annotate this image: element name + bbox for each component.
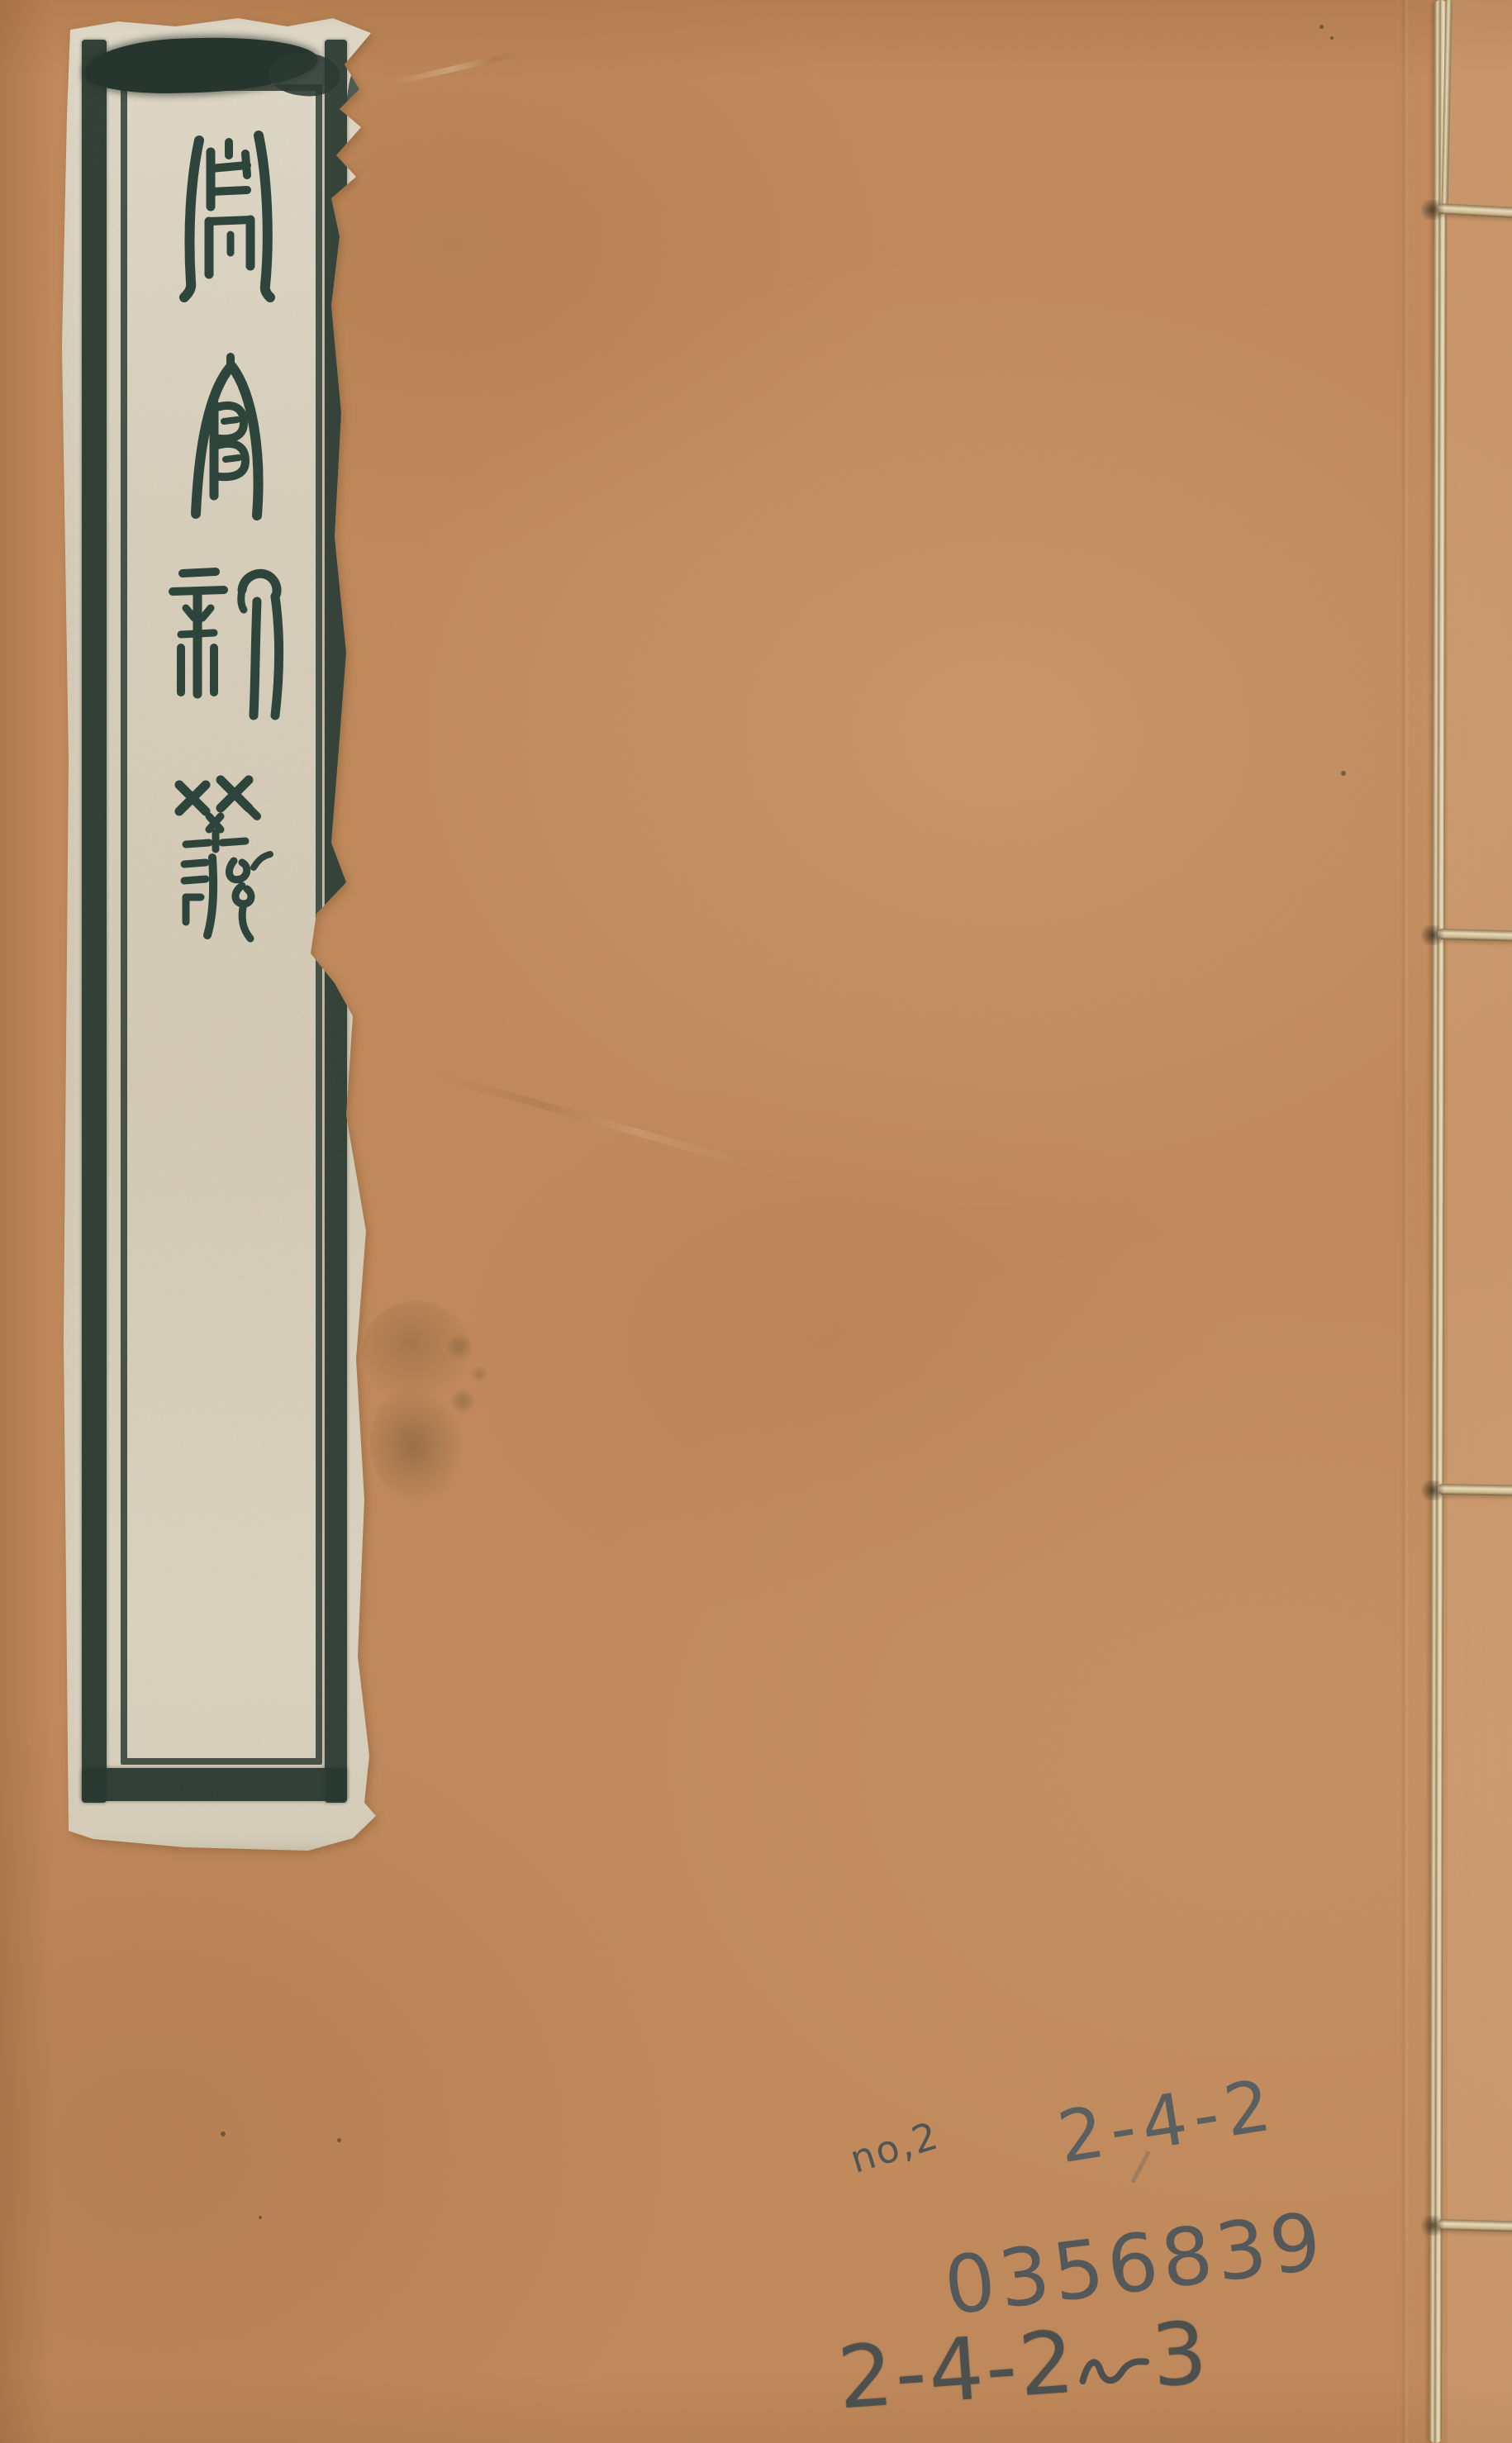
pencil-shelf-mark-top: 2-4-2 — [1053, 2064, 1283, 2179]
pencil-shelf-mark-bottom-prefix: 2-4-2 — [834, 2312, 1079, 2429]
pencil-shelf-mark-bottom: 2-4-2 3 — [834, 2302, 1212, 2428]
binding-knot-1 — [1421, 200, 1446, 220]
cover-wrinkle — [391, 49, 529, 86]
pencil-shelf-mark-bottom-suffix: 3 — [1148, 2302, 1213, 2407]
binding-crease — [1400, 0, 1410, 2443]
label-border-left — [82, 40, 107, 1803]
binding-knot-2 — [1421, 925, 1446, 945]
binding-knot-4 — [1421, 2216, 1446, 2236]
pencil-note: no,2 — [844, 2113, 944, 2182]
binding-stitch-4 — [1438, 2219, 1512, 2231]
label-border-torn-fragment — [344, 64, 373, 120]
speck — [221, 2132, 226, 2136]
speck — [1330, 36, 1334, 40]
title-char-zhou — [158, 117, 305, 311]
speck — [1319, 25, 1324, 29]
label-border-bottom — [82, 1768, 347, 1801]
speck — [259, 2216, 262, 2219]
title-char-yi — [158, 765, 305, 984]
binding-margin-highlight — [1448, 0, 1512, 2443]
book-cover: no,2 2-4-2 0356839 2-4-2 3 — [0, 0, 1512, 2443]
cover-crease — [435, 1071, 746, 1167]
label-border-right — [325, 40, 347, 1803]
speck — [337, 2138, 341, 2142]
speck — [1341, 771, 1346, 776]
title-label-paper — [60, 17, 387, 1856]
title-label — [60, 17, 387, 1856]
binding-stitch-2 — [1438, 929, 1512, 941]
binding-stitch-3 — [1438, 1484, 1512, 1496]
pencil-connector-glyph — [1074, 2331, 1154, 2396]
stain-speckles — [440, 1328, 506, 1419]
title-char-guan — [158, 349, 305, 539]
title-char-xin — [158, 555, 305, 741]
binding-knot-3 — [1421, 1481, 1446, 1500]
binding-thread-vertical — [1429, 0, 1447, 2443]
